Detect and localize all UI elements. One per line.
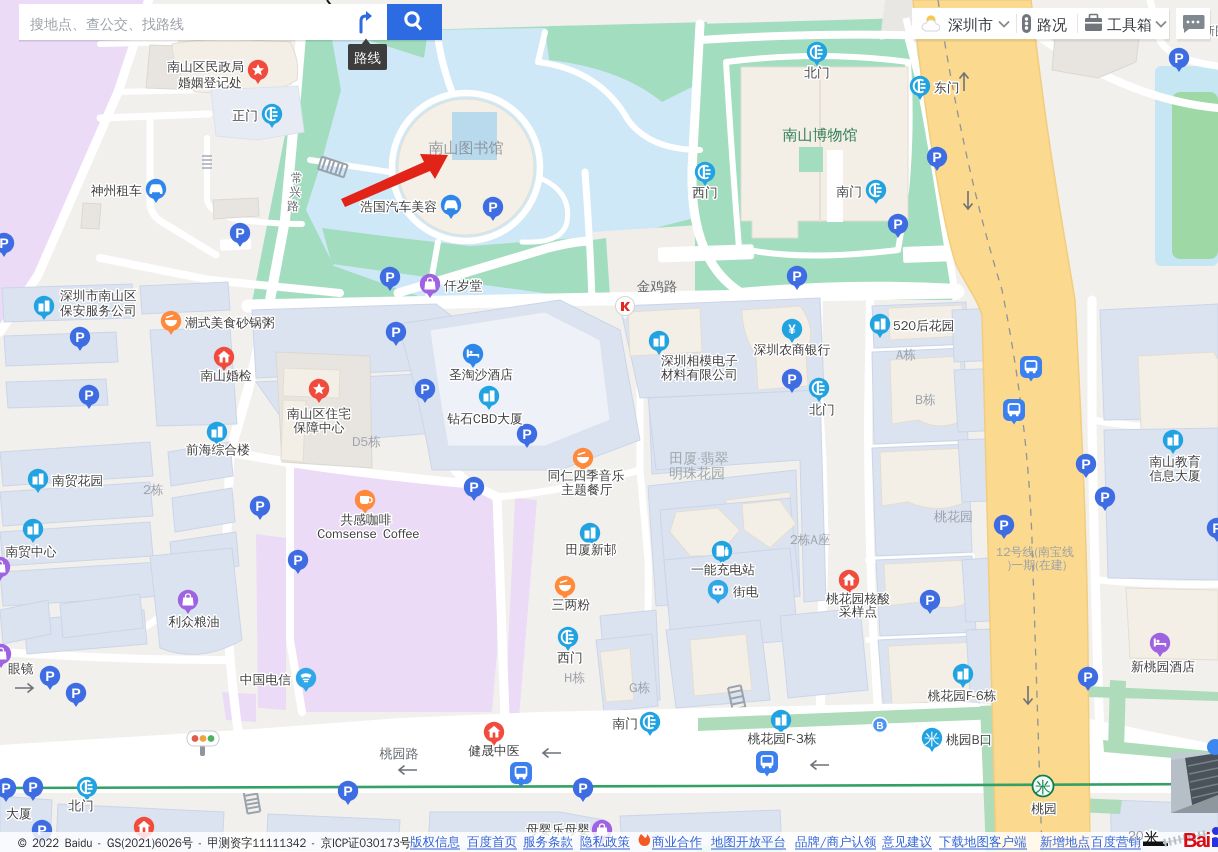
svg-text:Bai: Bai: [1183, 830, 1211, 852]
